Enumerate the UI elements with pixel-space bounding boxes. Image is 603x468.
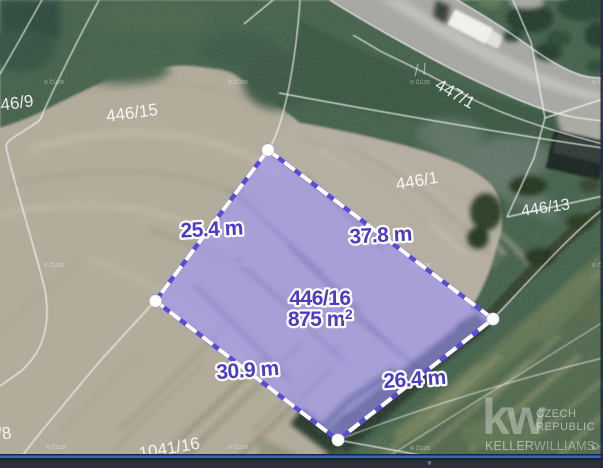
svg-text:© ČÚZK: © ČÚZK [228, 79, 249, 86]
svg-text:REPUBLIC: REPUBLIC [536, 421, 595, 433]
svg-text:© ČÚZK: © ČÚZK [410, 79, 431, 86]
svg-text:26.4 m: 26.4 m [383, 366, 447, 393]
svg-text:37.8 m: 37.8 m [349, 222, 413, 248]
svg-text:KELLERWILLIAMS: KELLERWILLIAMS [485, 439, 595, 453]
svg-text:© ČÚZK: © ČÚZK [44, 79, 65, 86]
svg-text:30.9 m: 30.9 m [216, 357, 280, 384]
svg-text:© ČÚZK: © ČÚZK [46, 444, 67, 451]
svg-text:CZECH: CZECH [536, 408, 576, 420]
svg-text:446/16: 446/16 [289, 287, 350, 310]
svg-text:© ČÚZK: © ČÚZK [410, 445, 431, 452]
svg-text:© ČÚZK: © ČÚZK [44, 262, 65, 269]
svg-text:25.4 m: 25.4 m [180, 216, 244, 242]
svg-text:875 m2: 875 m2 [288, 306, 353, 331]
svg-text:© ČÚZK: © ČÚZK [228, 444, 249, 451]
